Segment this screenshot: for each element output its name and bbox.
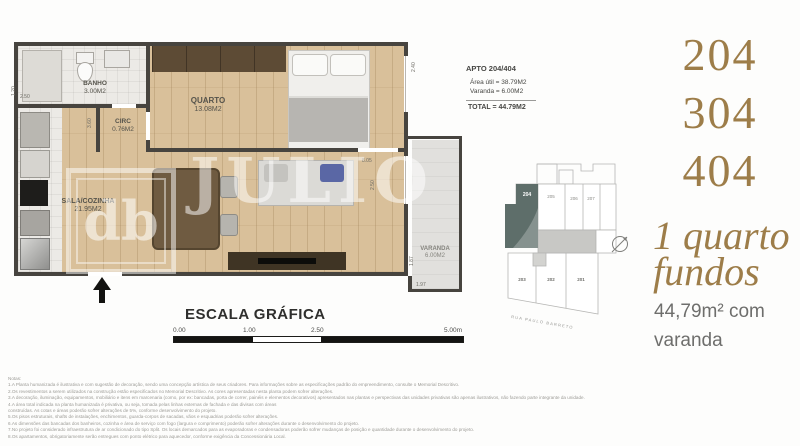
wall bbox=[14, 42, 18, 276]
dimension-label: 8.05 bbox=[362, 158, 372, 164]
scale-title: ESCALA GRÁFICA bbox=[185, 306, 326, 323]
info-title: APTO 204/404 bbox=[466, 64, 576, 73]
disclaimer-notes: Notas: 1.A Planta humanizada é ilustrati… bbox=[8, 376, 596, 440]
scale-tick-5: 5.00m bbox=[444, 327, 462, 334]
dining-table bbox=[152, 168, 220, 250]
varanda-rail bbox=[408, 136, 462, 139]
chair-icon bbox=[220, 214, 238, 236]
wall bbox=[146, 148, 360, 152]
keyplan-unit-202: 202 bbox=[547, 277, 555, 282]
street-label: RUA PAULO BARRETO bbox=[511, 314, 574, 330]
apartment-info-box: APTO 204/404 Área útil = 38.79M2 Varanda… bbox=[466, 64, 576, 111]
size-text-line1: 44,79m² com bbox=[654, 301, 765, 323]
unit-number-404: 404 bbox=[645, 144, 795, 197]
dimension-label: 1.97 bbox=[416, 282, 426, 288]
entrance-arrow-stem bbox=[99, 289, 105, 303]
varanda-rail bbox=[459, 136, 462, 292]
scale-bar-segment bbox=[253, 337, 321, 342]
wall bbox=[14, 42, 408, 46]
fridge-icon bbox=[20, 238, 50, 270]
room-label-quarto: QUARTO 13.08M2 bbox=[178, 96, 238, 114]
room-label-banho: BANHO 3.00M2 bbox=[72, 80, 118, 96]
kitchen-sink-icon bbox=[20, 210, 50, 236]
dimension-label: 1.20 bbox=[11, 86, 17, 96]
door-opening bbox=[358, 148, 398, 152]
info-total: TOTAL = 44.79M2 bbox=[468, 104, 576, 111]
kitchen-counter-icon bbox=[20, 150, 50, 178]
room-label-sala: SALA/COZINHA 21.95M2 bbox=[48, 198, 128, 215]
sink-icon bbox=[104, 50, 130, 68]
door-opening bbox=[146, 112, 150, 140]
pillow-icon bbox=[292, 54, 328, 76]
scale-tick-1: 1.00 bbox=[243, 327, 256, 334]
sofa-cushion-gray-icon bbox=[264, 164, 288, 182]
keyplan-corridor bbox=[538, 230, 596, 253]
wall bbox=[408, 276, 412, 292]
wall bbox=[96, 104, 100, 152]
scale-tick-0: 0.00 bbox=[173, 327, 186, 334]
wall bbox=[398, 148, 408, 152]
dimension-label: 2.50 bbox=[370, 180, 376, 190]
scale-tick-2_5: 2.50 bbox=[311, 327, 324, 334]
scale-bar bbox=[173, 336, 464, 343]
dimension-label: 2.50 bbox=[20, 94, 30, 100]
unit-number-204: 204 bbox=[645, 28, 795, 81]
blanket bbox=[289, 96, 368, 142]
keyplan: 204 205 206 207 203 202 201 RUA PAULO BA… bbox=[503, 158, 643, 342]
note-line: 8.Os apartamentos, obrigatoriamente serã… bbox=[8, 434, 596, 440]
keyplan-unit-205: 205 bbox=[547, 194, 555, 199]
size-text-line2: varanda bbox=[654, 330, 723, 352]
info-divider bbox=[466, 100, 536, 101]
kitchen-cabinet-icon bbox=[20, 112, 50, 148]
stove-icon bbox=[20, 180, 48, 206]
door-opening bbox=[112, 104, 136, 108]
note-line: 3.A decoração, iluminação, equipamentos,… bbox=[8, 395, 596, 401]
keyplan-unit-203: 203 bbox=[518, 277, 526, 282]
entrance-opening bbox=[88, 272, 122, 276]
room-label-circ: CIRC 0.76M2 bbox=[102, 118, 144, 134]
keyplan-unit-206: 206 bbox=[570, 196, 578, 201]
dimension-label: 3.60 bbox=[87, 118, 93, 128]
scale-bar-segment bbox=[174, 337, 253, 342]
floor-plan-page: BANHO 3.00M2 CIRC 0.76M2 QUARTO 13.08M2 … bbox=[0, 0, 800, 446]
wardrobe bbox=[152, 46, 286, 72]
sofa-cushion-blue-icon bbox=[320, 164, 344, 182]
chair-icon bbox=[220, 176, 238, 198]
window-line bbox=[405, 56, 406, 112]
dimension-label: 2.40 bbox=[411, 62, 417, 72]
keyplan-unit-204: 204 bbox=[523, 192, 532, 198]
varanda-rail bbox=[408, 289, 462, 292]
unit-number-304: 304 bbox=[645, 86, 795, 139]
keyplan-unit-201: 201 bbox=[577, 277, 585, 282]
tv-icon bbox=[258, 258, 316, 264]
pillow-icon bbox=[330, 54, 366, 76]
room-label-varanda: VARANDA 6.00M2 bbox=[410, 246, 460, 260]
sliding-door-line bbox=[405, 156, 406, 204]
info-varanda: Varanda = 6.00M2 bbox=[470, 87, 576, 96]
scale-bar-segment bbox=[321, 337, 463, 342]
dimension-label: 1.87 bbox=[409, 256, 415, 266]
keyplan-unit-207: 207 bbox=[587, 196, 595, 201]
info-area-util: Área útil = 38.79M2 bbox=[470, 78, 576, 87]
varanda-floor bbox=[412, 140, 459, 289]
tagline-line2: fundos bbox=[653, 252, 760, 292]
wall bbox=[14, 272, 408, 276]
